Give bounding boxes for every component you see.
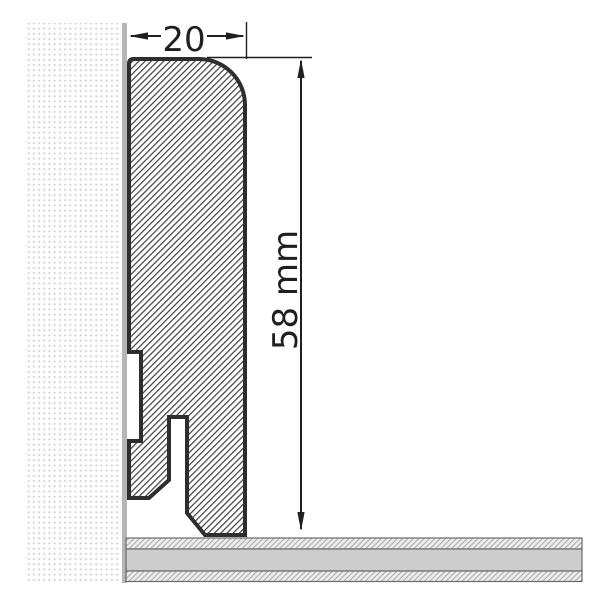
floor-layer-middle: [126, 549, 582, 571]
width-dimension-label: 20: [162, 20, 205, 60]
skirting-profile: [129, 59, 245, 535]
floor: [126, 538, 582, 582]
arrow-left: [129, 32, 148, 39]
arrow-right: [226, 32, 245, 39]
floor-layer-top-hatched: [126, 538, 582, 549]
wall-edge-strip: [122, 23, 127, 583]
floor-layer-bottom-hatched: [126, 571, 582, 582]
width-dimension: 20: [129, 20, 247, 60]
wall-plaster-texture: [25, 23, 119, 583]
wall: [25, 23, 127, 583]
arrow-up: [297, 59, 304, 78]
technical-drawing-page: 20 58 mm: [0, 0, 604, 604]
arrow-down: [297, 512, 304, 531]
height-dimension-label: 58 mm: [266, 230, 306, 350]
skirting-board-drawing: 20 58 mm: [0, 0, 604, 604]
